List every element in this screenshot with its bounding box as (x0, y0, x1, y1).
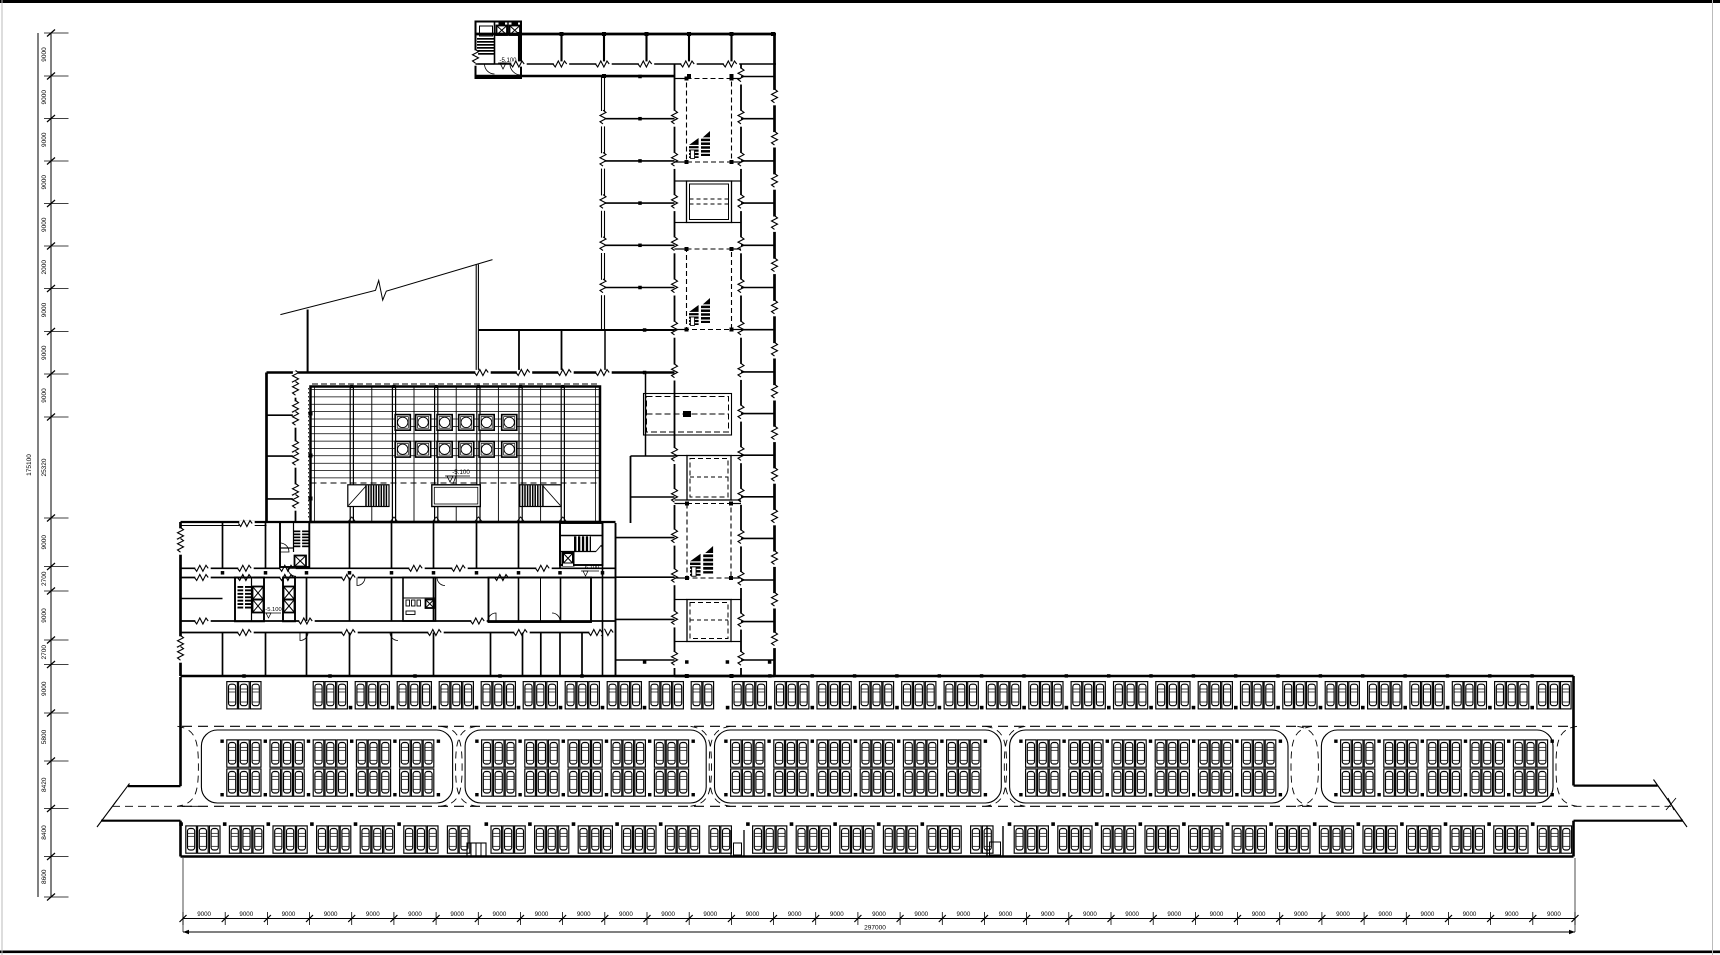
svg-text:2700: 2700 (41, 645, 48, 660)
svg-text:9000: 9000 (619, 911, 633, 918)
svg-text:-6.100: -6.100 (583, 565, 599, 571)
svg-text:9000: 9000 (746, 911, 760, 918)
svg-text:9000: 9000 (324, 911, 338, 918)
svg-text:9000: 9000 (41, 175, 48, 190)
svg-text:9000: 9000 (41, 535, 48, 550)
svg-text:9000: 9000 (41, 608, 48, 623)
svg-text:2700: 2700 (41, 571, 48, 586)
svg-text:9000: 9000 (535, 911, 549, 918)
svg-text:9000: 9000 (1463, 911, 1477, 918)
svg-text:8400: 8400 (41, 825, 48, 840)
svg-text:9000: 9000 (41, 90, 48, 105)
svg-text:9000: 9000 (41, 681, 48, 696)
svg-text:9000: 9000 (41, 345, 48, 360)
svg-text:9000: 9000 (577, 911, 591, 918)
svg-text:9000: 9000 (1210, 911, 1224, 918)
svg-text:9000: 9000 (197, 911, 211, 918)
svg-text:9000: 9000 (1041, 911, 1055, 918)
svg-text:25320: 25320 (41, 458, 48, 476)
svg-text:9000: 9000 (914, 911, 928, 918)
svg-text:9000: 9000 (1252, 911, 1266, 918)
svg-text:9000: 9000 (1505, 911, 1519, 918)
svg-text:9000: 9000 (1125, 911, 1139, 918)
svg-text:9000: 9000 (1294, 911, 1308, 918)
svg-text:8600: 8600 (41, 869, 48, 884)
svg-text:9000: 9000 (239, 911, 253, 918)
svg-text:9000: 9000 (41, 302, 48, 317)
svg-text:9000: 9000 (957, 911, 971, 918)
svg-text:9000: 9000 (1167, 911, 1181, 918)
svg-text:9000: 9000 (872, 911, 886, 918)
svg-text:9000: 9000 (1336, 911, 1350, 918)
svg-text:9000: 9000 (1083, 911, 1097, 918)
svg-text:2000: 2000 (41, 260, 48, 275)
svg-text:297000: 297000 (864, 925, 886, 932)
svg-text:9000: 9000 (788, 911, 802, 918)
svg-text:9000: 9000 (830, 911, 844, 918)
svg-text:9000: 9000 (41, 388, 48, 403)
svg-text:9000: 9000 (41, 217, 48, 232)
svg-text:9000: 9000 (366, 911, 380, 918)
svg-text:9000: 9000 (661, 911, 675, 918)
svg-text:9000: 9000 (703, 911, 717, 918)
svg-text:9000: 9000 (493, 911, 507, 918)
svg-text:8420: 8420 (41, 777, 48, 792)
svg-text:-5.100: -5.100 (452, 469, 470, 476)
svg-text:9000: 9000 (1421, 911, 1435, 918)
svg-text:9000: 9000 (408, 911, 422, 918)
svg-text:9000: 9000 (1378, 911, 1392, 918)
svg-text:175100: 175100 (26, 454, 33, 476)
svg-text:9000: 9000 (41, 132, 48, 147)
svg-text:9000: 9000 (1547, 911, 1561, 918)
svg-text:5800: 5800 (41, 729, 48, 744)
svg-text:-5.100: -5.100 (265, 607, 281, 613)
svg-text:9000: 9000 (999, 911, 1013, 918)
svg-text:9000: 9000 (450, 911, 464, 918)
svg-text:9000: 9000 (282, 911, 296, 918)
svg-text:9000: 9000 (41, 47, 48, 62)
